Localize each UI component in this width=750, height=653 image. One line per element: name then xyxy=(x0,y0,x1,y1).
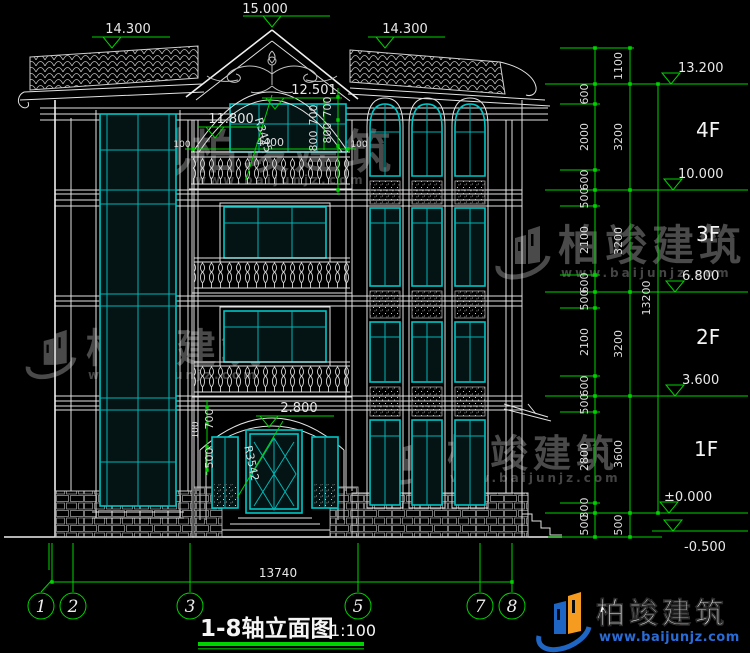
company-name: 柏竣建筑 xyxy=(596,596,728,630)
entrance-side-window-right xyxy=(312,437,338,508)
svg-text:11.800: 11.800 xyxy=(208,112,254,127)
dim-floor-height: 500 xyxy=(612,515,625,536)
elevation-marker-10000: 10.000 xyxy=(652,167,748,190)
roof-right xyxy=(348,50,550,106)
window-3f-center xyxy=(220,203,330,262)
overall-width-dimension: 13740 xyxy=(259,566,297,580)
watermark-logo-icon xyxy=(28,330,74,377)
dim-segment: 500 xyxy=(578,394,591,415)
entrance-porch xyxy=(194,418,358,537)
cad-elevation-drawing: 柏竣建筑 www.baijunjz.com 柏竣建筑 www.baijunjz.… xyxy=(0,0,750,653)
axis-bubble-1: 1 xyxy=(28,593,54,619)
dim-segment: 2100 xyxy=(578,328,591,356)
window-2f-center xyxy=(220,307,330,366)
title-underline-thin xyxy=(198,648,364,650)
marker-right-roof: 14.300 xyxy=(368,22,445,48)
floor-label-4f: 4F xyxy=(696,118,720,142)
left-wing xyxy=(55,100,194,537)
balustrade-3f xyxy=(192,258,352,293)
window-strip-3 xyxy=(452,98,488,508)
elevation-marker-zero: ±0.000 xyxy=(652,490,748,513)
svg-text:2.800: 2.800 xyxy=(280,401,317,416)
marker-peak: 15.000 xyxy=(242,2,330,27)
dim-segment: 600 xyxy=(578,84,591,105)
dim-segment: 2800 xyxy=(578,443,591,471)
svg-text:100: 100 xyxy=(191,421,201,438)
drawing-title: 1-8轴立面图 xyxy=(200,615,334,642)
dim-floor-height: 3200 xyxy=(612,330,625,358)
svg-text:6.800: 6.800 xyxy=(682,269,719,284)
svg-text:1: 1 xyxy=(36,597,47,617)
floor-label-3f: 3F xyxy=(696,222,720,246)
svg-text:100: 100 xyxy=(350,140,367,150)
dim-segment: 500 xyxy=(578,515,591,536)
axis-bubble-2: 2 xyxy=(60,593,86,619)
svg-text:13.200: 13.200 xyxy=(678,61,724,76)
marker-entrance: 2.800 xyxy=(256,401,334,427)
company-url: www.baijunjz.com xyxy=(599,630,740,645)
dim-floor-height: 3200 xyxy=(612,227,625,255)
elevation-marker-3600: 3.600 xyxy=(652,373,748,396)
dim-floor-height: 3200 xyxy=(612,123,625,151)
axis-bubble-5: 5 xyxy=(345,593,371,619)
title-underline xyxy=(198,642,364,646)
svg-text:700: 700 xyxy=(307,105,320,126)
svg-text:700: 700 xyxy=(203,409,216,430)
svg-text:7: 7 xyxy=(475,597,486,617)
svg-text:14.300: 14.300 xyxy=(105,22,151,37)
entrance-steps xyxy=(222,518,330,530)
svg-text:700: 700 xyxy=(321,97,334,118)
dim-segment: 2000 xyxy=(578,123,591,151)
dim-segment: 500 xyxy=(578,188,591,209)
drawing-scale: 1:100 xyxy=(330,621,376,640)
elevation-marker-minus500: -0.500 xyxy=(652,520,748,555)
stairwell-curtain-window xyxy=(100,114,176,506)
roof-left xyxy=(18,46,204,108)
side-canopy xyxy=(504,404,551,421)
svg-text:12.501: 12.501 xyxy=(291,83,337,98)
svg-text:15.000: 15.000 xyxy=(242,2,288,17)
balustrade-2f xyxy=(192,362,352,397)
floor-label-1f: 1F xyxy=(694,437,718,461)
marker-left-roof: 14.300 xyxy=(92,22,170,48)
svg-text:10.000: 10.000 xyxy=(678,167,724,182)
building-elevation xyxy=(4,30,562,537)
svg-text:±0.000: ±0.000 xyxy=(664,490,712,505)
svg-text:8: 8 xyxy=(507,597,518,617)
floor-label-2f: 2F xyxy=(696,325,720,349)
svg-text:-0.500: -0.500 xyxy=(684,540,726,555)
dim-top: 1100 xyxy=(612,52,625,80)
company-logo: 柏竣建筑 www.baijunjz.com xyxy=(539,592,740,650)
window-strip-2 xyxy=(409,98,445,508)
svg-text:5: 5 xyxy=(353,597,364,617)
svg-text:100: 100 xyxy=(173,140,190,150)
svg-text:500: 500 xyxy=(203,448,216,469)
dim-segment: 500 xyxy=(578,290,591,311)
title-block: 1-8轴立面图 1:100 xyxy=(198,615,376,650)
svg-text:800: 800 xyxy=(307,131,320,152)
dim-segment: 600 xyxy=(578,376,591,397)
axis-grid-bottom: 13740 1 2 3 5 7 8 xyxy=(28,543,525,619)
company-logo-icon xyxy=(539,592,589,650)
svg-text:14.300: 14.300 xyxy=(382,22,428,37)
dim-total-height: 13200 xyxy=(640,281,653,316)
center-bay xyxy=(189,92,358,537)
svg-text:3: 3 xyxy=(185,597,196,617)
axis-bubble-7: 7 xyxy=(467,593,493,619)
dim-segment: 600 xyxy=(578,170,591,191)
drawing-canvas: 柏竣建筑 www.baijunjz.com 柏竣建筑 www.baijunjz.… xyxy=(0,0,750,653)
svg-text:2: 2 xyxy=(67,597,79,617)
watermark-logo-icon xyxy=(498,226,548,277)
dim-segment: 2100 xyxy=(578,226,591,254)
elevation-marker-13200: 13.200 xyxy=(652,61,748,84)
axis-bubble-8: 8 xyxy=(499,593,525,619)
dim-floor-height: 3600 xyxy=(612,440,625,468)
svg-text:800: 800 xyxy=(321,123,334,144)
svg-text:3.600: 3.600 xyxy=(682,373,719,388)
